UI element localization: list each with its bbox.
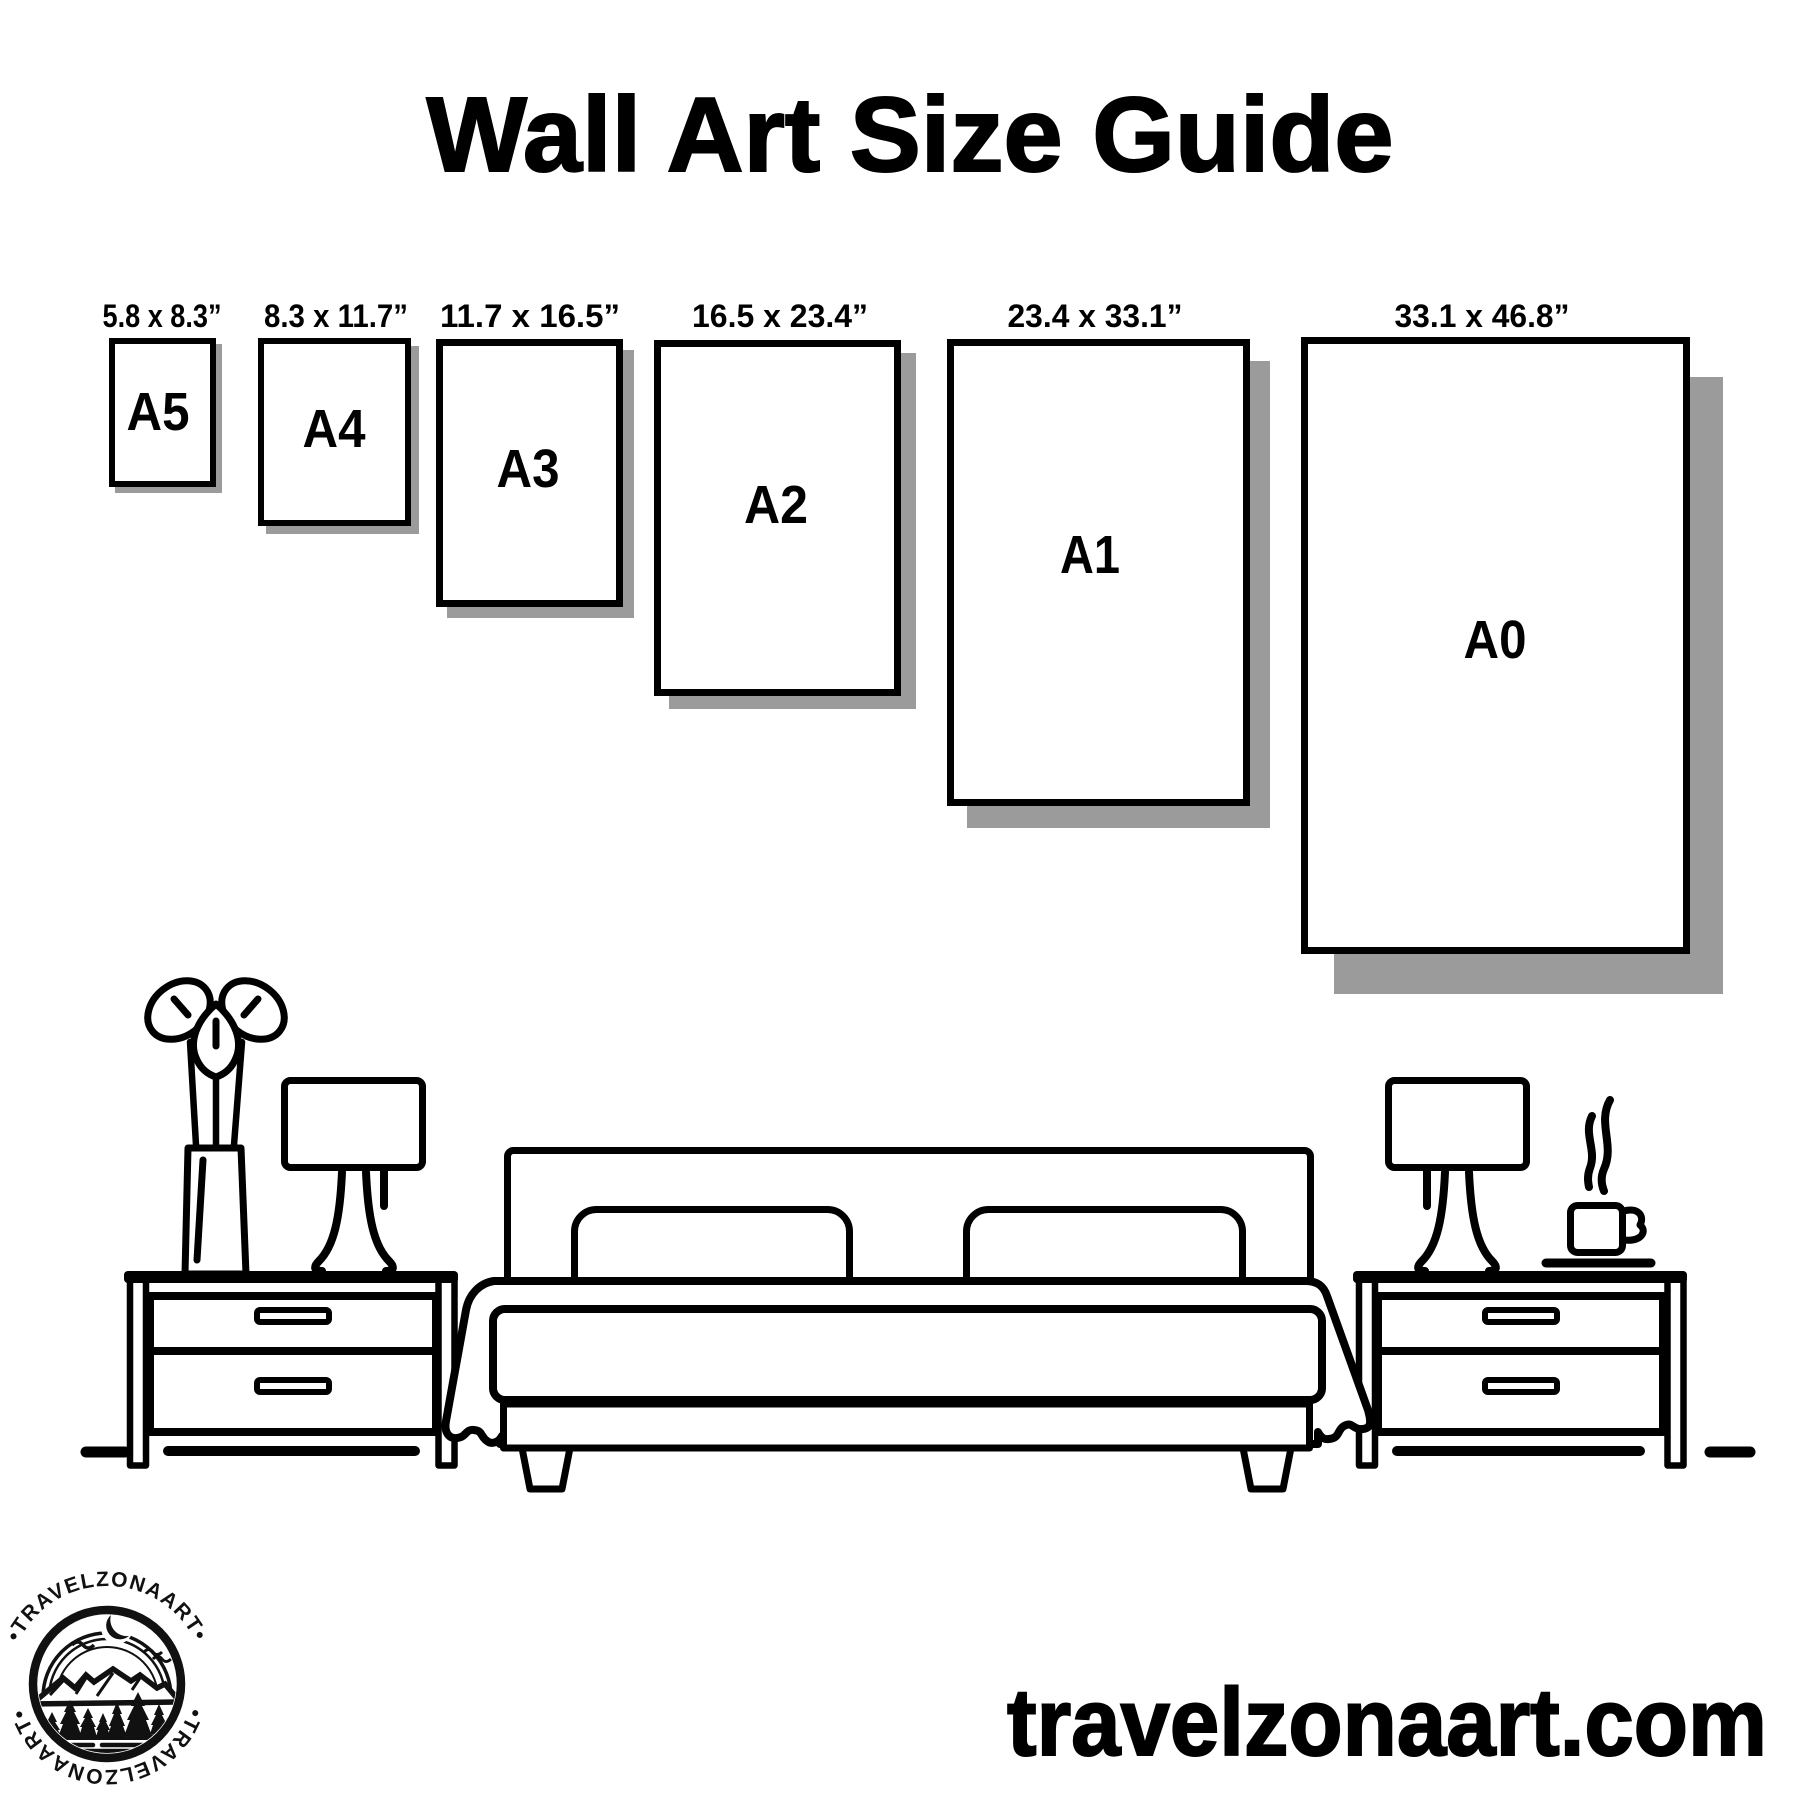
svg-text:A2: A2 (744, 475, 808, 535)
svg-text:A5: A5 (127, 382, 190, 442)
svg-text:23.4 x 33.1”: 23.4 x 33.1” (1008, 298, 1183, 334)
svg-text:5.8 x 8.3”: 5.8 x 8.3” (103, 298, 222, 334)
svg-text:33.1 x 46.8”: 33.1 x 46.8” (1395, 298, 1570, 334)
svg-text:11.7 x 16.5”: 11.7 x 16.5” (440, 298, 620, 334)
svg-text:travelzonaart.com: travelzonaart.com (1007, 1669, 1767, 1776)
svg-text:8.3 x 11.7”: 8.3 x 11.7” (264, 298, 408, 334)
svg-text:A3: A3 (497, 439, 560, 499)
svg-text:A0: A0 (1464, 610, 1527, 670)
svg-text:A4: A4 (303, 399, 366, 459)
svg-text:Wall Art Size Guide: Wall Art Size Guide (427, 76, 1394, 194)
svg-text:16.5 x 23.4”: 16.5 x 23.4” (692, 298, 868, 334)
svg-text:A1: A1 (1060, 525, 1120, 585)
